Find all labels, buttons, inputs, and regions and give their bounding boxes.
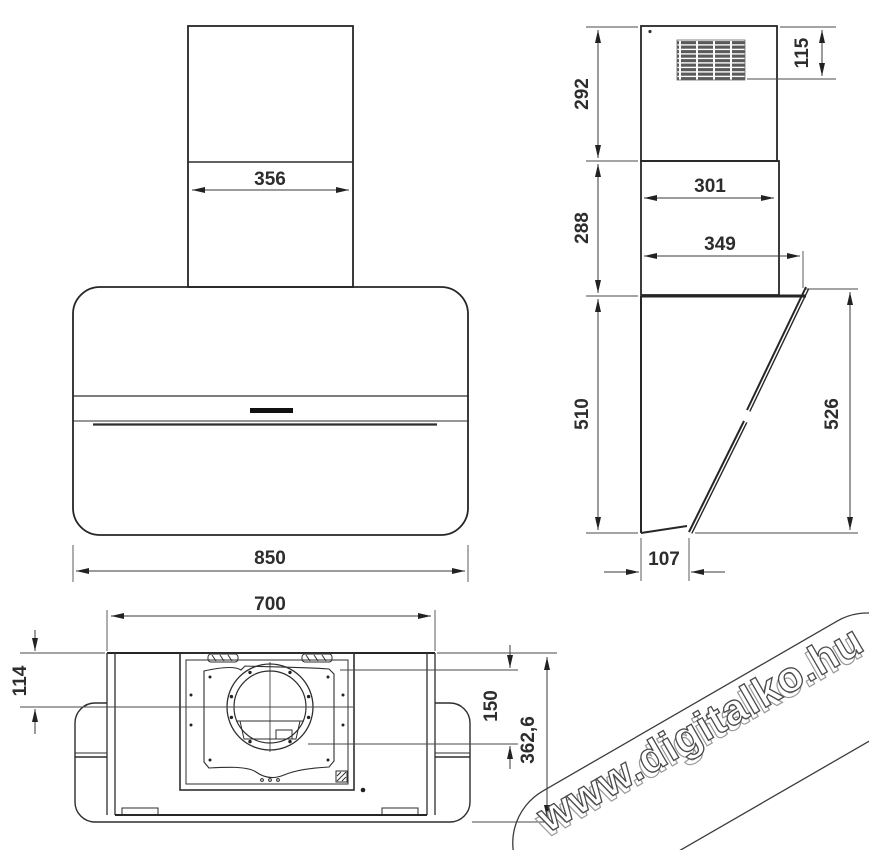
dim-side-body-bottom-depth: 107 <box>648 549 680 570</box>
control-handle <box>250 408 293 413</box>
side-view-dimensions: 292 288 510 115 301 349 526 107 <box>572 27 858 581</box>
dim-side-glass-panel-height: 526 <box>822 398 843 430</box>
watermark-text: www.digitalko.hu <box>528 616 869 842</box>
glass-panel-side <box>689 287 809 533</box>
dim-front-chimney-width: 356 <box>254 169 286 190</box>
dim-side-body-height: 510 <box>572 398 593 430</box>
mounting-plate <box>204 666 334 778</box>
plate-screws <box>190 676 345 762</box>
foot-right <box>382 808 418 815</box>
dim-side-upper-chimney-height: 292 <box>572 78 593 110</box>
watermark: www.digitalko.hu www.digitalko.hu <box>491 591 869 850</box>
front-view: 356 850 <box>73 26 468 582</box>
vent-dots <box>261 779 280 782</box>
dim-side-lower-chimney-depth: 349 <box>704 234 736 255</box>
side-view-outline <box>641 26 809 533</box>
dim-bottom-body-width: 700 <box>254 594 286 615</box>
front-view-dimensions: 356 850 <box>73 169 468 582</box>
dim-front-body-width: 850 <box>254 548 286 569</box>
blower-housing <box>20 653 518 790</box>
exhaust-grille <box>677 40 745 80</box>
bottom-view: 700 114 150 362,6 <box>10 594 557 822</box>
front-view-outline <box>73 26 468 535</box>
dim-bottom-total-depth: 362,6 <box>518 716 539 764</box>
dim-side-vent-grille-height: 115 <box>792 37 813 68</box>
foot-left <box>122 808 158 815</box>
screw-dot <box>361 788 366 793</box>
bottom-view-body <box>75 653 470 822</box>
mounting-bracket-left <box>208 654 238 662</box>
side-view: 292 288 510 115 301 349 526 107 <box>572 26 858 581</box>
dim-bottom-back-panel-depth: 114 <box>10 665 31 696</box>
bottom-view-dimensions: 700 114 150 362,6 <box>10 594 557 822</box>
dim-bottom-duct-diameter: 150 <box>481 690 502 722</box>
mounting-bracket-right <box>302 654 332 662</box>
mounting-hole <box>648 30 651 33</box>
label-plate <box>336 771 347 782</box>
dim-side-lower-chimney-height: 288 <box>572 212 593 244</box>
cooker-hood-dimension-drawing: 356 850 <box>0 0 869 850</box>
dim-side-upper-chimney-depth: 301 <box>694 176 726 197</box>
